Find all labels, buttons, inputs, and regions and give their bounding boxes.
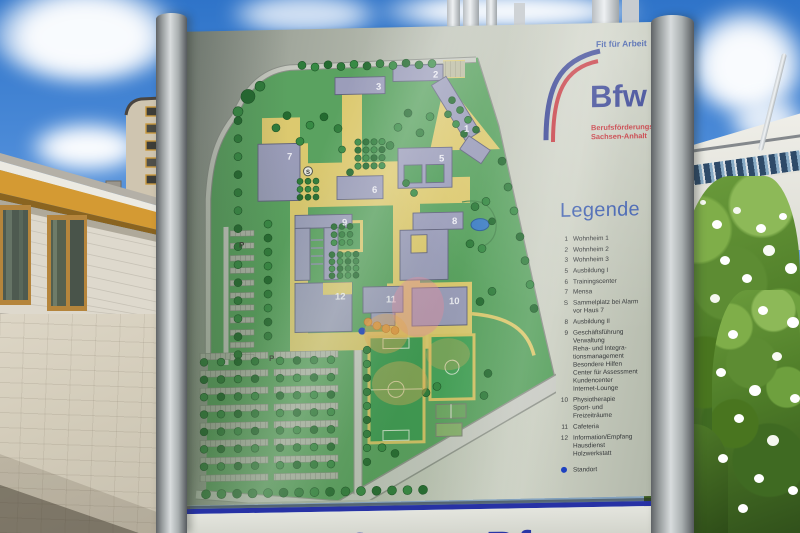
tree-icon <box>453 121 460 128</box>
tree-icon <box>386 141 394 149</box>
tree-icon <box>339 239 345 245</box>
tree-icon <box>521 257 529 265</box>
tree-icon <box>306 121 314 129</box>
tree-icon <box>293 426 301 434</box>
svg-text:9: 9 <box>342 217 347 228</box>
tree-icon <box>311 63 319 71</box>
tree-icon <box>376 60 384 68</box>
tree-icon <box>363 360 371 368</box>
flagpole <box>463 0 479 27</box>
tree-icon <box>234 410 242 418</box>
tree-icon <box>200 445 208 453</box>
svg-text:7: 7 <box>287 152 292 163</box>
svg-text:5: 5 <box>439 153 445 164</box>
tree-icon <box>371 147 377 154</box>
tree-icon <box>433 382 441 390</box>
legend-item: 3Wohnheim 3 <box>558 255 652 265</box>
tree-icon <box>234 445 242 453</box>
tree-icon <box>327 356 335 364</box>
tree-icon <box>233 489 242 498</box>
tree-icon <box>357 487 366 496</box>
tree-icon <box>251 357 259 365</box>
tree-icon <box>264 488 273 497</box>
tree-icon <box>339 231 345 237</box>
tree-icon <box>251 444 259 452</box>
tree-icon <box>363 458 371 466</box>
legend-item: 11Cafeteria <box>558 422 652 432</box>
tree-icon <box>264 332 272 340</box>
tree-icon <box>363 416 371 424</box>
tree-icon <box>355 139 361 146</box>
tree-icon <box>264 248 272 256</box>
tree-icon <box>310 460 318 468</box>
tree-icon <box>337 251 343 257</box>
tree-icon <box>293 356 301 364</box>
tree-icon <box>279 488 288 497</box>
parking-row <box>230 305 254 311</box>
tree-icon <box>200 376 208 384</box>
tree-icon <box>298 61 306 69</box>
legend: Legende 1Wohnheim 1 2Wohnheim 2 3Wohnhei… <box>558 198 652 474</box>
legend-item: SSammelplatz bei Alarm vor Haus 7 <box>558 298 652 316</box>
tree-icon <box>310 487 319 496</box>
tree-icon <box>310 391 318 399</box>
tree-icon <box>283 112 291 120</box>
tree-icon <box>276 461 284 469</box>
tree-icon <box>200 411 208 419</box>
tree-icon <box>217 428 225 436</box>
tree-icon <box>310 443 318 451</box>
tree-icon <box>217 489 226 498</box>
svg-text:12: 12 <box>335 291 346 302</box>
tree-icon <box>310 408 318 416</box>
tree-icon <box>337 62 345 70</box>
tree-icon <box>234 375 242 383</box>
tree-icon <box>234 225 242 233</box>
tree-icon <box>379 146 385 153</box>
tree-icon <box>388 486 397 495</box>
svg-text:S: S <box>306 170 310 176</box>
tree-icon <box>264 220 272 228</box>
svg-text:6: 6 <box>372 185 377 196</box>
tree-icon <box>234 135 242 143</box>
parking-row <box>230 292 254 298</box>
tree-icon <box>251 427 259 435</box>
parking-row <box>200 474 268 482</box>
assembly-point-marker-icon: S <box>304 167 313 176</box>
tree-icon <box>234 207 242 215</box>
legend-item: 6Trainingscenter <box>558 277 652 287</box>
tree-icon <box>355 155 361 162</box>
legend-title: Legende <box>560 198 652 223</box>
tree-icon <box>428 60 436 68</box>
tree-icon <box>234 462 242 470</box>
tree-icon <box>347 239 353 245</box>
tree-icon <box>217 393 225 401</box>
tree-icon <box>363 388 371 396</box>
tree-icon <box>305 186 311 192</box>
tree-icon <box>276 392 284 400</box>
tree-icon <box>476 298 484 306</box>
campus-map-sign-panel: 3 2 1 7 6 5 9 8 12 11 10 P P S <box>186 22 652 506</box>
tree-icon <box>329 252 335 258</box>
tree-icon <box>353 251 359 257</box>
tree-icon <box>276 426 284 434</box>
tree-icon <box>217 410 225 418</box>
tree-icon <box>402 59 410 67</box>
tree-icon <box>363 444 371 452</box>
legend-item: 2Wohnheim 2 <box>558 245 652 255</box>
tree-icon <box>234 279 242 287</box>
tree-icon <box>379 162 385 169</box>
tree-icon <box>379 138 385 145</box>
tree-icon <box>264 304 272 312</box>
tree-icon <box>320 113 328 121</box>
tree-icon <box>200 428 208 436</box>
tree-icon <box>234 392 242 400</box>
tree-icon <box>337 272 343 278</box>
tree-icon <box>255 81 265 91</box>
tree-icon <box>471 203 479 211</box>
tree-icon <box>353 265 359 271</box>
flower-clusters <box>700 200 706 205</box>
tree-icon <box>363 402 371 410</box>
tree-icon <box>313 178 319 184</box>
tree-icon <box>276 409 284 417</box>
tree-icon <box>473 126 480 133</box>
tree-icon <box>449 97 456 104</box>
tree-icon <box>363 163 369 170</box>
parking-row <box>274 472 338 480</box>
tree-icon <box>329 259 335 265</box>
tree-icon <box>510 207 518 215</box>
tree-icon <box>251 410 259 418</box>
tree-icon <box>234 315 242 323</box>
tree-icon <box>488 287 496 295</box>
tree-icon <box>296 137 304 145</box>
tree-icon <box>234 189 242 197</box>
tree-icon <box>378 444 386 452</box>
logo-tagline: Fit für Arbeit <box>596 38 647 49</box>
window <box>0 205 31 305</box>
svg-text:1: 1 <box>464 124 470 135</box>
tree-icon <box>403 486 412 495</box>
legend-item: 7Mensa <box>558 287 652 297</box>
standort-dot-icon <box>561 467 567 473</box>
tree-icon <box>217 445 225 453</box>
tree-icon <box>484 369 492 377</box>
tree-icon <box>345 265 351 271</box>
tree-icon <box>345 258 351 264</box>
tree-icon <box>234 358 242 366</box>
tree-icon <box>504 183 512 191</box>
lower-sign-text: Berufsforum Bfw <box>210 522 566 533</box>
tree-icon <box>217 375 225 383</box>
tree-icon <box>445 111 452 118</box>
tree-icon <box>394 123 402 131</box>
tree-icon <box>329 273 335 279</box>
legend-item: 9Geschäftsführung Verwaltung Reha- und I… <box>558 328 652 395</box>
tree-icon <box>363 430 371 438</box>
tree-icon <box>404 109 412 117</box>
tree-icon <box>234 333 242 341</box>
tree-icon <box>331 232 337 238</box>
legend-item: 5Ausbildung I <box>558 266 652 276</box>
tree-icon <box>466 240 474 248</box>
legend-item: 1Wohnheim 1 <box>558 234 652 244</box>
tree-icon <box>217 358 225 366</box>
tree-icon <box>293 391 301 399</box>
photo-of-campus-map-sign: 3 2 1 7 6 5 9 8 12 11 10 P P S <box>0 0 800 533</box>
parking-row <box>230 255 254 261</box>
tree-icon <box>516 233 524 241</box>
tree-icon <box>324 61 332 69</box>
svg-text:P: P <box>239 241 245 250</box>
small-parking <box>443 61 465 77</box>
tree-icon <box>327 373 335 381</box>
tree-icon <box>264 290 272 298</box>
svg-text:10: 10 <box>449 296 460 307</box>
tree-icon <box>264 318 272 326</box>
tree-icon <box>234 297 242 305</box>
tree-icon <box>419 485 428 494</box>
tree-icon <box>371 155 377 162</box>
tree-icon <box>234 261 242 269</box>
parking-row <box>230 230 254 236</box>
tree-icon <box>200 358 208 366</box>
tree-icon <box>241 89 255 103</box>
tree-icon <box>355 147 361 154</box>
tree-icon <box>200 393 208 401</box>
tree-icon <box>339 146 346 153</box>
legend-item: 12Information/Empfang Hausdienst Holzwer… <box>558 433 652 459</box>
tree-icon <box>389 61 397 69</box>
tree-icon <box>411 189 418 196</box>
svg-text:8: 8 <box>452 216 457 227</box>
parking-row <box>230 330 254 336</box>
tree-icon <box>251 462 259 470</box>
tree-icon <box>248 489 257 498</box>
tree-icon <box>234 171 242 179</box>
sign-post-right <box>651 15 694 533</box>
tree-icon <box>310 373 318 381</box>
tree-icon <box>353 258 359 264</box>
parking-row <box>230 268 254 274</box>
tree-icon <box>350 60 358 68</box>
tree-icon <box>347 223 353 229</box>
tree-icon <box>264 234 272 242</box>
sign-post-left <box>156 13 187 533</box>
tree-icon <box>363 139 369 146</box>
tree-icon <box>363 155 369 162</box>
tree-icon <box>313 186 319 192</box>
tree-icon <box>353 272 359 278</box>
tree-icon <box>363 62 371 70</box>
tree-icon <box>326 487 335 496</box>
tree-icon <box>217 462 225 470</box>
tree-icon <box>371 163 377 170</box>
tree-icon <box>426 113 434 121</box>
tree-icon <box>403 180 410 187</box>
tree-icon <box>313 194 319 200</box>
tree-icon <box>297 178 303 184</box>
tree-icon <box>264 262 272 270</box>
tree-icon <box>337 258 343 264</box>
logo-brand: Bfw <box>590 78 647 115</box>
tree-icon <box>391 449 399 457</box>
tree-icon <box>371 139 377 146</box>
tree-icon <box>334 124 342 132</box>
building-7 <box>258 143 300 201</box>
tree-icon <box>480 391 488 399</box>
tree-icon <box>276 374 284 382</box>
tree-icon <box>272 124 280 132</box>
tree-icon <box>498 157 506 165</box>
tree-icon <box>327 425 335 433</box>
tree-icon <box>478 244 486 252</box>
tree-icon <box>305 194 311 200</box>
tree-icon <box>331 240 337 246</box>
tree-icon <box>372 486 381 495</box>
tree-icon <box>347 169 354 176</box>
tree-icon <box>416 129 424 137</box>
campus-map: 3 2 1 7 6 5 9 8 12 11 10 P P S <box>190 50 556 504</box>
window <box>47 215 87 311</box>
tree-icon <box>363 147 369 154</box>
tree-icon <box>482 197 490 205</box>
tree-icon <box>341 487 350 496</box>
tree-icon <box>233 107 243 117</box>
tree-icon <box>293 374 301 382</box>
tree-icon <box>310 356 318 364</box>
tree-icon <box>297 186 303 192</box>
tree-icon <box>465 116 472 123</box>
svg-text:P: P <box>269 354 275 363</box>
tree-icon <box>379 154 385 161</box>
tree-icon <box>530 304 538 312</box>
legend-standort: Standort <box>558 465 652 474</box>
legend-item: 8Ausbildung II <box>558 317 652 327</box>
svg-text:3: 3 <box>376 82 381 93</box>
tree-icon <box>200 463 208 471</box>
legend-item: 10Physiotherapie Sport- und Freizeiträum… <box>558 395 652 421</box>
flagpole <box>447 0 460 26</box>
tree-icon <box>297 194 303 200</box>
tree-icon <box>347 231 353 237</box>
tree-icon <box>526 280 534 288</box>
parking-row <box>230 342 254 348</box>
tree-icon <box>202 490 211 499</box>
svg-text:2: 2 <box>433 69 438 80</box>
tree-icon <box>295 488 304 497</box>
tree-icon <box>293 409 301 417</box>
tree-icon <box>234 153 242 161</box>
tree-icon <box>327 460 335 468</box>
tree-icon <box>327 391 335 399</box>
tree-icon <box>293 461 301 469</box>
tree-icon <box>363 374 371 382</box>
tree-icon <box>310 426 318 434</box>
tree-icon <box>489 218 496 225</box>
tree-icon <box>276 444 284 452</box>
tree-icon <box>345 251 351 257</box>
tree-icon <box>327 408 335 416</box>
tree-icon <box>264 276 272 284</box>
tree-icon <box>293 443 301 451</box>
tree-icon <box>234 117 242 125</box>
tree-icon <box>337 265 343 271</box>
tree-icon <box>331 224 337 230</box>
tree-icon <box>251 375 259 383</box>
tree-icon <box>457 106 464 113</box>
tree-icon <box>355 163 361 170</box>
tree-icon <box>329 266 335 272</box>
tree-icon <box>234 427 242 435</box>
tree-icon <box>251 392 259 400</box>
tree-icon <box>305 178 311 184</box>
tree-icon <box>415 61 423 69</box>
tree-icon <box>345 272 351 278</box>
tree-icon <box>327 443 335 451</box>
bfw-logo: Fit für Arbeit Bfw Berufsförderungswerk … <box>532 34 652 157</box>
tree-icon <box>276 357 284 365</box>
